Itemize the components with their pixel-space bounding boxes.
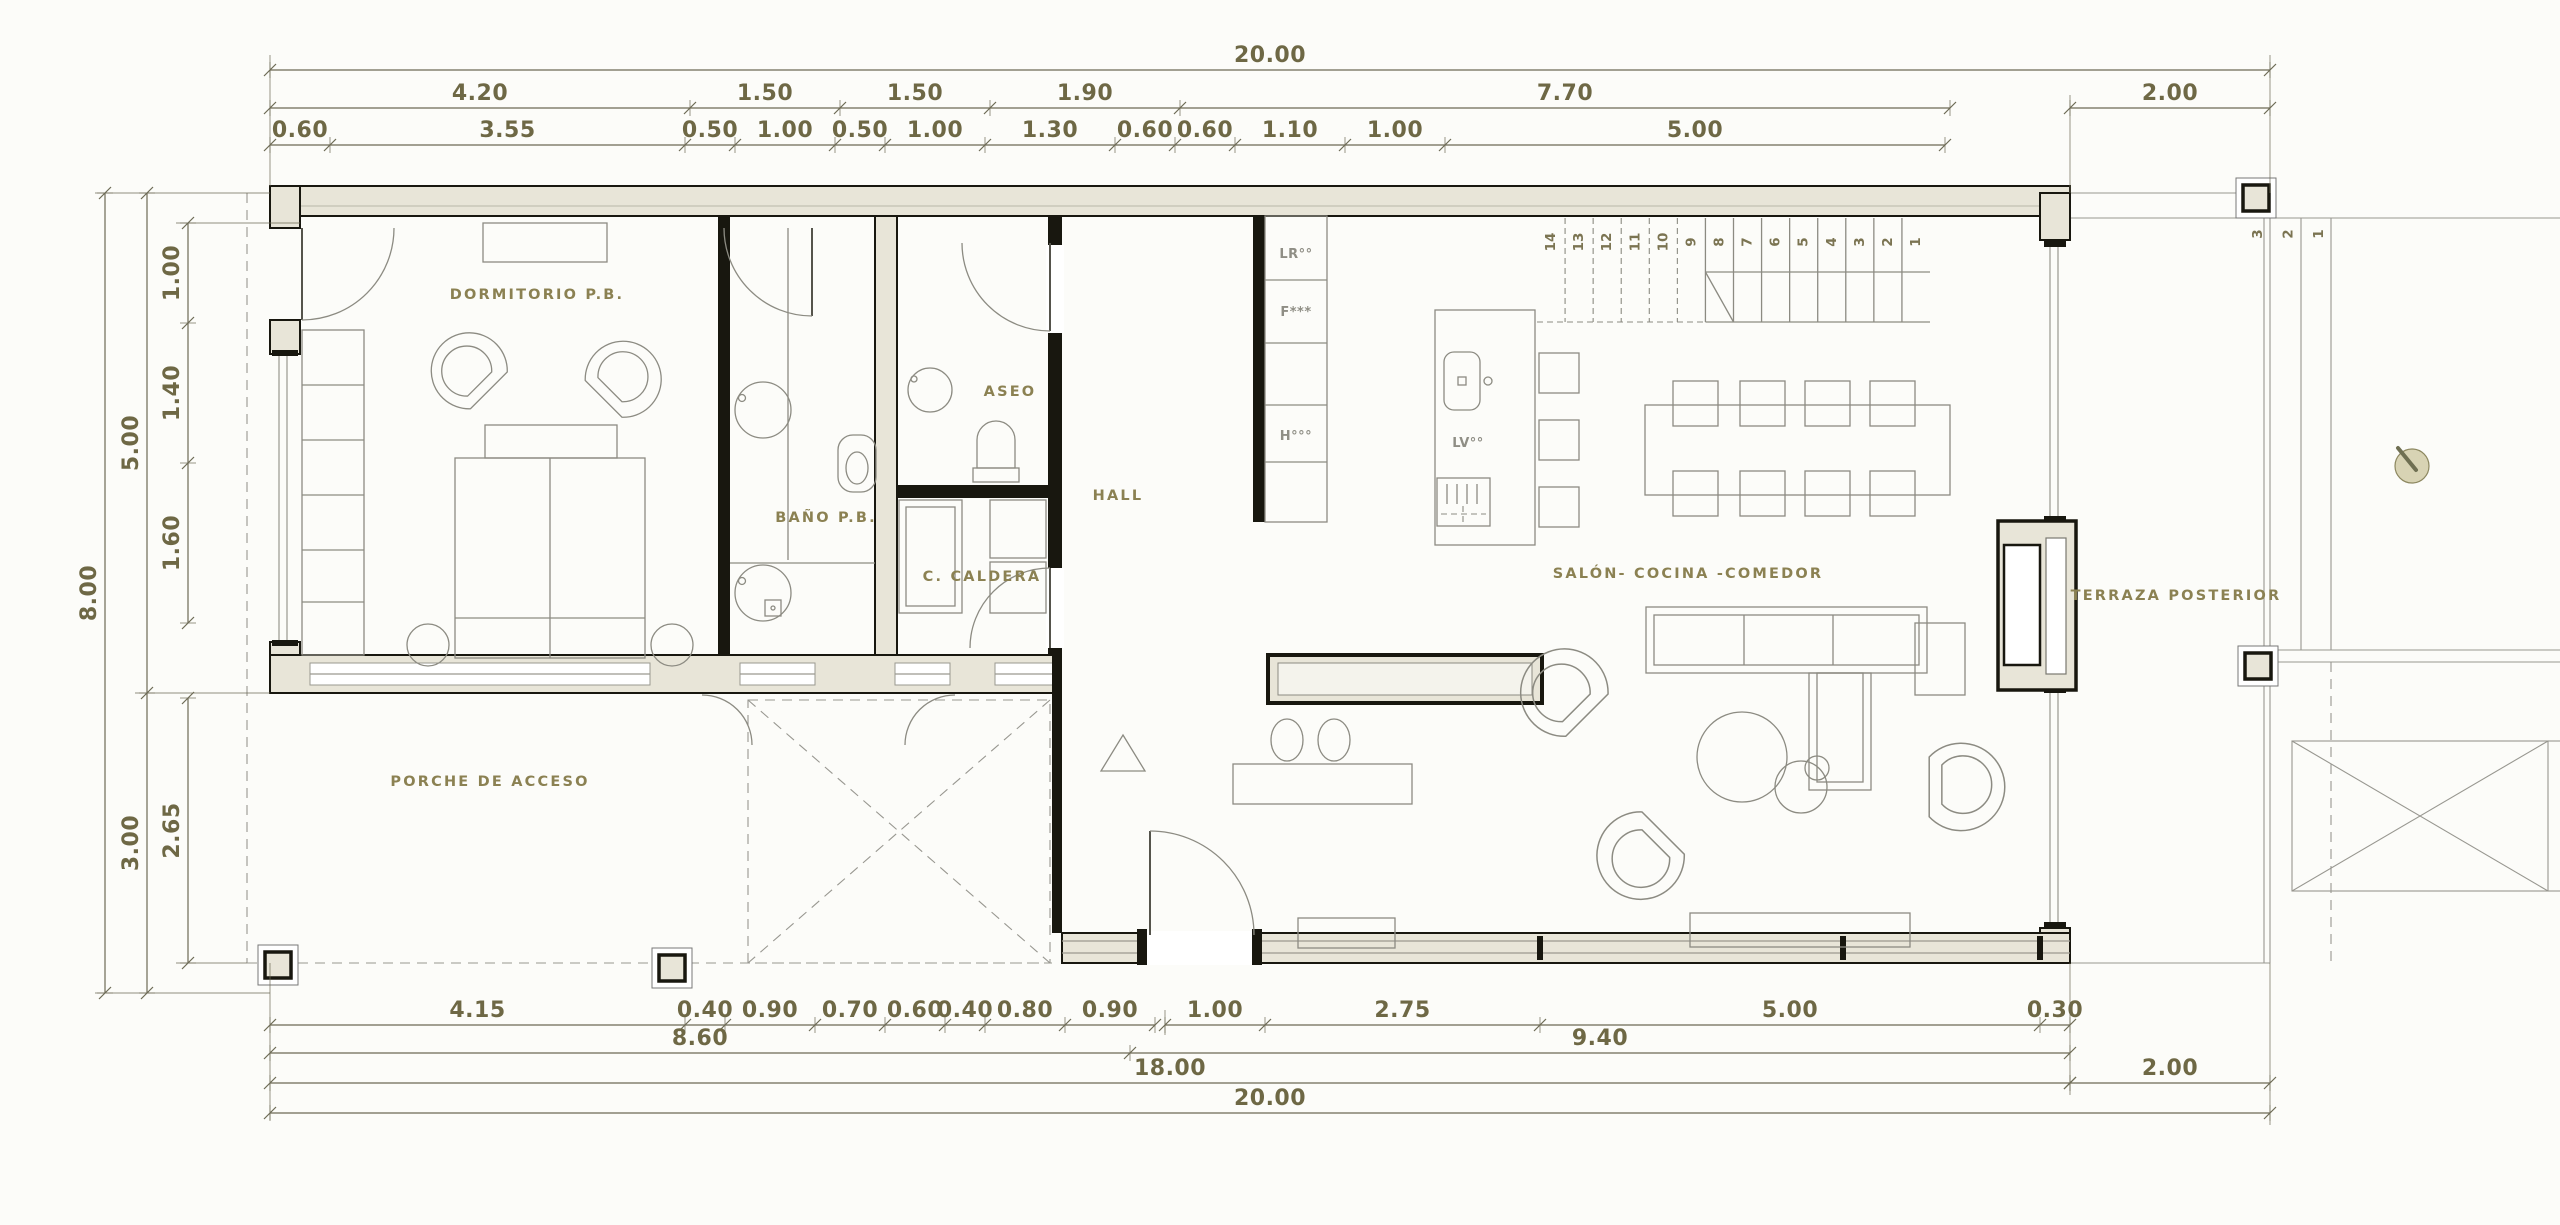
dimension-value: 5.00: [1667, 118, 1723, 143]
bench: [1268, 655, 1542, 703]
staircase: 1413121110987654321: [1537, 218, 1930, 322]
dimension-value: 0.70: [822, 998, 878, 1023]
dimension-value: 1.30: [1022, 118, 1078, 143]
dimension-value: 0.90: [1082, 998, 1138, 1023]
entry-arrow-icon: [1101, 735, 1145, 771]
dimension-top-row-1: 20.00: [264, 43, 2276, 78]
dimension-value: 5.00: [1762, 998, 1818, 1023]
dimension-value: 0.60: [887, 998, 943, 1023]
stair-number: 12: [1599, 233, 1615, 252]
dimension-value: 1.00: [907, 118, 963, 143]
dimension-value: 3.55: [479, 118, 535, 143]
armchair: [1579, 802, 1694, 917]
dimension-value: 2.00: [2142, 1056, 2198, 1081]
kitchen-island: LV°°: [1435, 310, 1579, 545]
dimension-value: 20.00: [1234, 1086, 1306, 1111]
room-label-terraza: TERRAZA POSTERIOR: [2071, 588, 2282, 604]
floorplan-sheet: 321LR°°F***H°°°LV°°1413121110987654321DO…: [0, 0, 2560, 1225]
dimension-left-col-1: 8.00: [77, 187, 113, 999]
dimension-value: 1.00: [757, 118, 813, 143]
stair-number: 13: [1571, 233, 1587, 252]
dimension-value: 0.80: [997, 998, 1053, 1023]
dimension-value: 2.75: [1374, 998, 1430, 1023]
room-label-bano: BAÑO P.B.: [775, 509, 877, 526]
stair-number: 8: [1711, 237, 1727, 246]
dimension-value: 1.10: [1262, 118, 1318, 143]
dimension-value: 20.00: [1234, 43, 1306, 68]
dimension-value: 0.50: [832, 118, 888, 143]
dimension-top-row-2: 4.201.501.501.907.702.00: [264, 81, 2276, 116]
dimension-value: 1.50: [737, 81, 793, 106]
dimension-value: 4.15: [449, 998, 505, 1023]
dimension-value: 1.50: [887, 81, 943, 106]
dishwasher-label: LV°°: [1452, 436, 1484, 451]
dimension-value: 0.40: [937, 998, 993, 1023]
dimension-value: 0.60: [272, 118, 328, 143]
dimension-value: 1.90: [1057, 81, 1113, 106]
terrace-column: [2238, 646, 2278, 686]
dimension-left-col-2: 5.003.00: [119, 187, 155, 999]
bathroom-furniture: [730, 228, 876, 621]
exterior-step-number: 1: [2311, 229, 2327, 238]
dimension-value: 9.40: [1572, 1026, 1628, 1051]
cabinet-label-lr: LR°°: [1279, 247, 1312, 262]
dining-set: [1645, 381, 1950, 516]
dimension-value: 1.40: [160, 365, 185, 421]
boiler-room-furniture: [899, 500, 1046, 613]
stair-number: 14: [1543, 233, 1559, 252]
dimension-value: 2.65: [160, 802, 185, 858]
armchair: [416, 317, 516, 417]
dimension-bottom-row-1: 4.150.400.900.700.600.400.800.901.002.75…: [264, 998, 2083, 1033]
exterior-step-number: 2: [2281, 229, 2297, 238]
stair-number: 10: [1655, 233, 1671, 252]
dimension-left-col-3: 1.001.401.602.65: [160, 217, 196, 969]
dimension-value: 5.00: [119, 415, 144, 471]
dimension-value: 8.00: [77, 565, 102, 621]
dimension-value: 0.50: [682, 118, 738, 143]
stair-number: 5: [1796, 237, 1812, 246]
dimension-value: 1.60: [160, 515, 185, 571]
sofa: [1646, 607, 1965, 790]
stair-number: 11: [1627, 233, 1643, 252]
porch-column: [258, 945, 298, 985]
cabinet-label-h: H°°°: [1280, 429, 1312, 444]
dimension-value: 0.60: [1117, 118, 1173, 143]
dimension-bottom-row-4: 20.00: [264, 1086, 2276, 1121]
dimension-value: 1.00: [1187, 998, 1243, 1023]
stair-number: 9: [1683, 237, 1699, 246]
appliance-cabinet: LR°°F***H°°°: [1265, 216, 1327, 522]
floorplan-drawing: 321LR°°F***H°°°LV°°1413121110987654321DO…: [0, 0, 2560, 1225]
stair-number: 1: [1908, 237, 1924, 246]
stair-number: 3: [1852, 237, 1868, 246]
site-lines: 321: [2070, 193, 2560, 963]
desk: [1233, 719, 1412, 804]
room-label-caldera: C. CALDERA: [923, 569, 1042, 585]
stair-number: 7: [1740, 237, 1756, 246]
room-label-salon: SALÓN- COCINA -COMEDOR: [1553, 564, 1824, 582]
dimension-value: 1.00: [160, 245, 185, 301]
dimension-value: 1.00: [1367, 118, 1423, 143]
fireplace-block: [1998, 521, 2076, 690]
room-label-dormitorio: DORMITORIO P.B.: [450, 287, 625, 303]
exterior-stair-numbers: 321: [2250, 229, 2327, 238]
dimension-value: 0.90: [742, 998, 798, 1023]
dimension-top-row-3: 0.603.550.501.000.501.001.300.600.601.10…: [264, 118, 1951, 153]
cabinet-label-f: F***: [1280, 305, 1311, 320]
dimension-value: 3.00: [119, 815, 144, 871]
dimension-value: 8.60: [672, 1026, 728, 1051]
armchair: [577, 326, 677, 426]
room-label-porche: PORCHE DE ACCESO: [390, 774, 589, 790]
dimension-value: 4.20: [452, 81, 508, 106]
stair-number: 2: [1880, 237, 1896, 246]
furniture: LR°°F***H°°°LV°°1413121110987654321: [302, 216, 2005, 948]
room-label-aseo: ASEO: [984, 384, 1037, 400]
room-label-hall: HALL: [1093, 488, 1144, 504]
armchair: [1929, 743, 2005, 830]
stair-number: 4: [1824, 237, 1840, 246]
exterior-step-number: 3: [2250, 229, 2266, 238]
dimension-value: 18.00: [1134, 1056, 1206, 1081]
dimension-value: 7.70: [1537, 81, 1593, 106]
dimension-value: 0.30: [2027, 998, 2083, 1023]
stair-number: 6: [1768, 237, 1784, 246]
porch-column: [652, 948, 692, 988]
tree-icon: [2395, 448, 2429, 483]
dimension-value: 0.40: [677, 998, 733, 1023]
dimension-value: 2.00: [2142, 81, 2198, 106]
dimension-value: 0.60: [1177, 118, 1233, 143]
